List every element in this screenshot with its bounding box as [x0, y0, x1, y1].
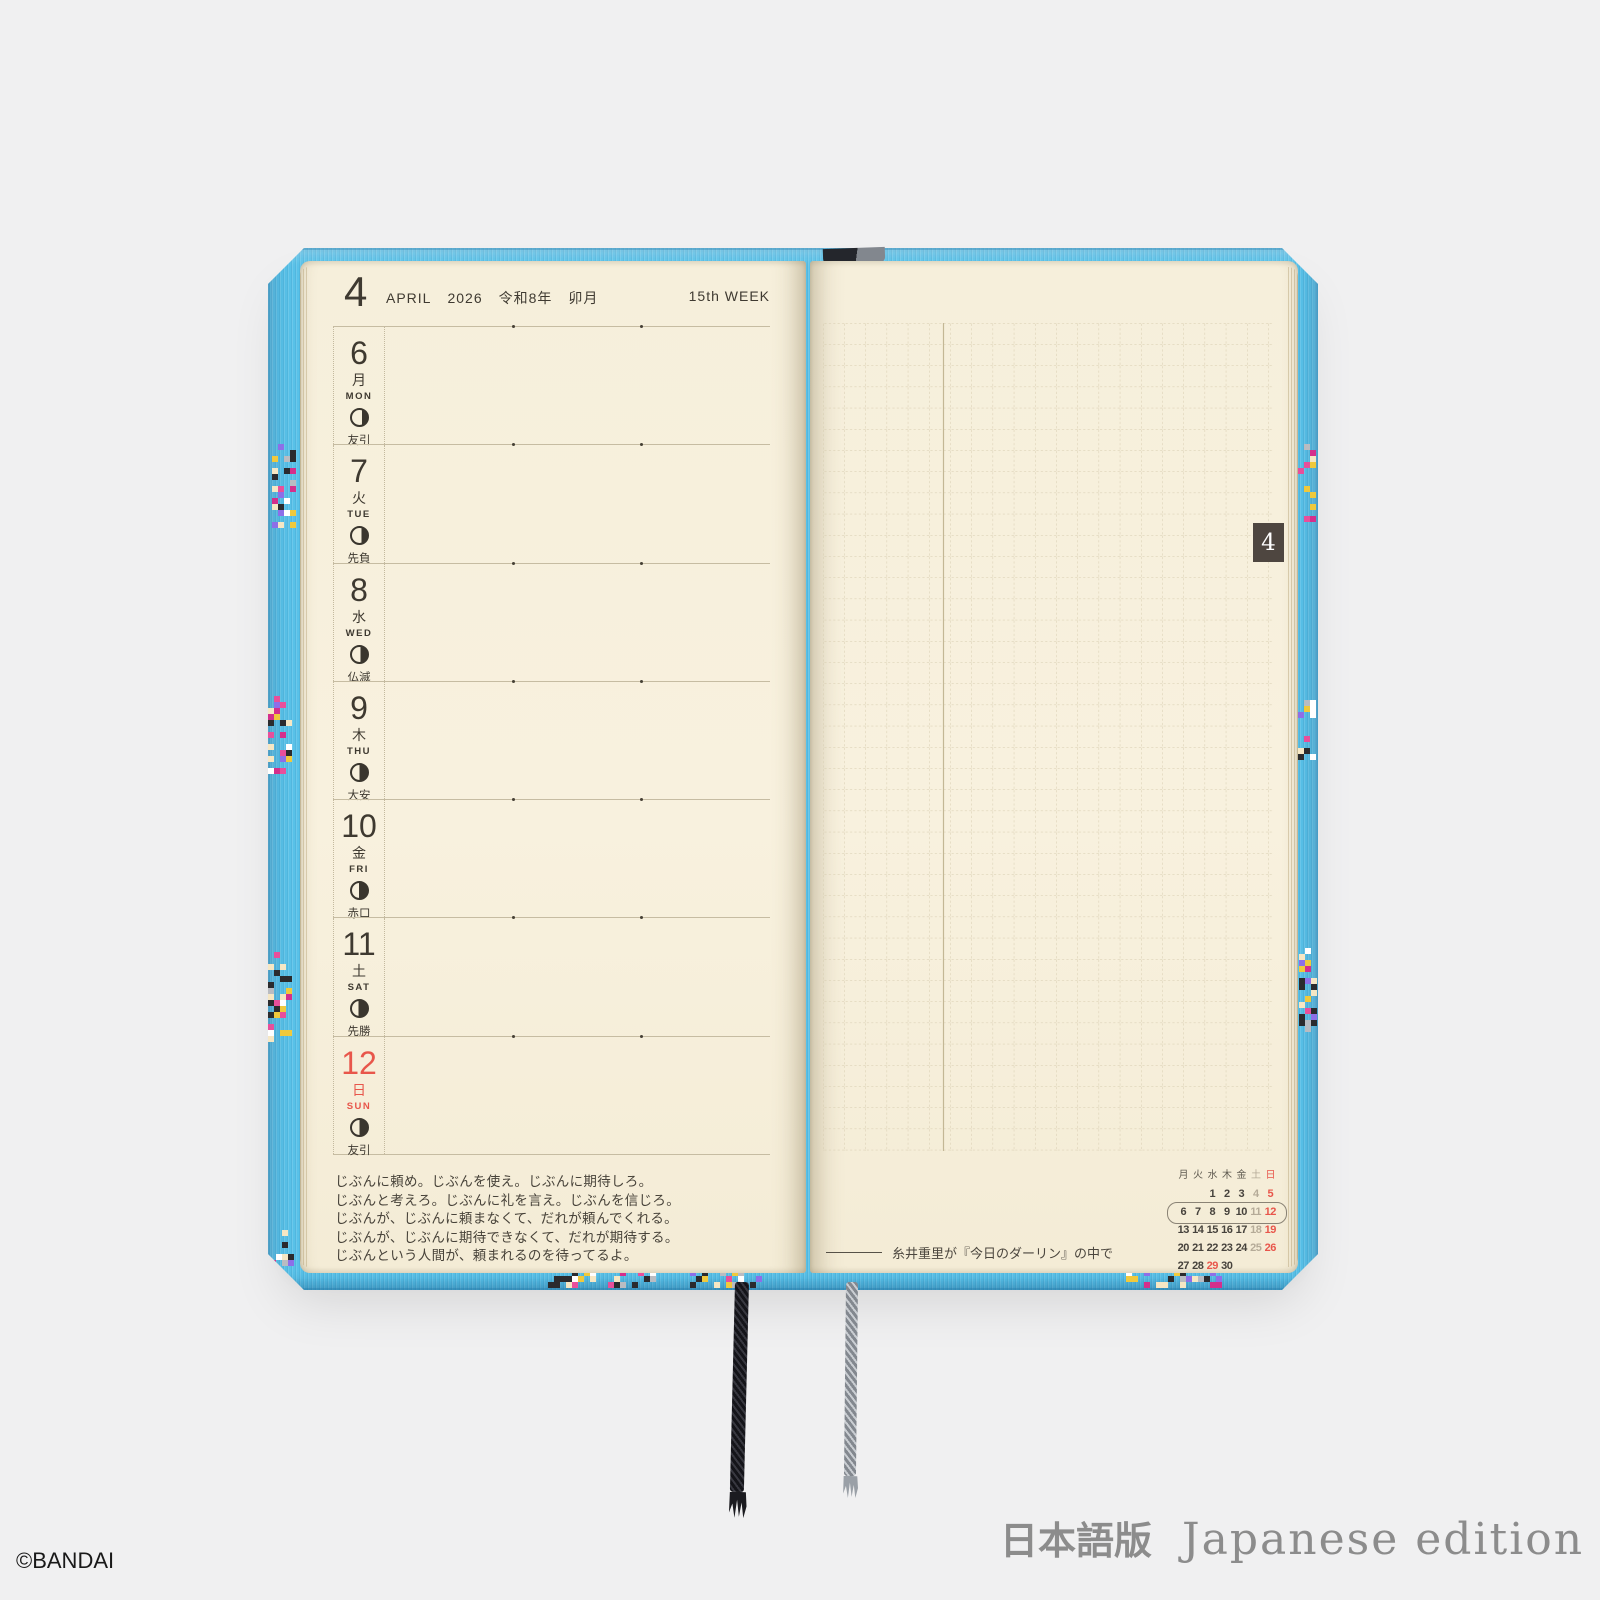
pixel-character-fragment	[268, 696, 274, 702]
day-date: 8	[334, 573, 384, 607]
month-number: 4	[344, 271, 367, 313]
day-weekday-kanji: 木	[334, 727, 384, 743]
quote-line: じぶんと考えろ。じぶんに礼を言え。じぶんを信じろ。	[335, 1192, 680, 1211]
day-weekday-en: TUE	[334, 509, 384, 520]
quote-line: じぶんが、じぶんに期待できなくて、だれが期待する。	[335, 1229, 680, 1248]
edition-japanese: 日本語版	[1000, 1510, 1152, 1565]
edition-english: Japanese edition	[1182, 1514, 1584, 1565]
calendar-cell: 20	[1176, 1239, 1191, 1257]
moon-phase-icon	[350, 763, 369, 782]
calendar-cell	[1176, 1185, 1191, 1203]
day-row: 8 水 WED 仏滅	[333, 563, 770, 681]
calendar-cell: 23	[1220, 1239, 1235, 1257]
day-rokuyo: 友引	[334, 1142, 384, 1158]
kyureki: 卯月	[568, 290, 598, 306]
time-dot	[512, 325, 515, 328]
calendar-cell: 27	[1176, 1257, 1191, 1275]
time-dot	[640, 325, 643, 328]
calendar-cell: 木	[1220, 1167, 1235, 1185]
graph-grid	[823, 323, 1273, 1151]
mini-calendar: 月火水木金土日123456789101112131415161718192021…	[1176, 1167, 1278, 1275]
day-row: 6 月 MON 友引	[333, 326, 770, 444]
calendar-cell: 月	[1176, 1167, 1191, 1185]
day-info-column: 9 木 THU 大安	[333, 682, 385, 799]
day-date: 6	[334, 336, 384, 370]
day-weekday-en: SAT	[334, 982, 384, 993]
time-dot	[640, 680, 643, 683]
month-header: APRIL2026令和8年卯月	[386, 288, 614, 308]
time-dot	[640, 1035, 643, 1038]
calendar-cell: 29	[1205, 1257, 1220, 1275]
calendar-cell: 25	[1249, 1239, 1264, 1257]
calendar-cell: 土	[1249, 1167, 1264, 1185]
day-weekday-en: FRI	[334, 864, 384, 875]
calendar-cell: 21	[1191, 1239, 1206, 1257]
time-dot	[512, 1035, 515, 1038]
bookmark-ribbon-gray	[844, 1282, 858, 1476]
calendar-cell: 28	[1191, 1257, 1206, 1275]
calendar-cell: 金	[1234, 1167, 1249, 1185]
day-weekday-kanji: 月	[334, 372, 384, 388]
day-row: 7 火 TUE 先負	[333, 444, 770, 562]
time-dot	[512, 680, 515, 683]
product-photo: 4 APRIL2026令和8年卯月 15th WEEK 6 月 MON 友引 7…	[0, 0, 1600, 1600]
day-info-column: 10 金 FRI 赤口	[333, 800, 385, 917]
pixel-character-fragment	[268, 952, 274, 958]
calendar-cell: 日	[1263, 1167, 1278, 1185]
moon-phase-icon	[350, 881, 369, 900]
day-weekday-en: SUN	[334, 1101, 384, 1112]
day-weekday-kanji: 水	[334, 609, 384, 625]
calendar-cell: 22	[1205, 1239, 1220, 1257]
calendar-cell	[1263, 1257, 1278, 1275]
calendar-cell: 24	[1234, 1239, 1249, 1257]
wareki: 令和8年	[499, 290, 553, 306]
week-label: 15th WEEK	[689, 288, 770, 304]
moon-phase-icon	[350, 645, 369, 664]
quote-block: じぶんに頼め。じぶんを使え。じぶんに期待しろ。じぶんと考えろ。じぶんに礼を言え。…	[335, 1173, 680, 1266]
day-weekday-kanji: 土	[334, 963, 384, 979]
calendar-cell: 水	[1205, 1167, 1220, 1185]
pixel-character-fragment	[270, 1230, 276, 1236]
edition-caption: 日本語版 Japanese edition	[1000, 1510, 1584, 1565]
pixel-character-fragment	[1298, 700, 1304, 706]
quote-line: じぶんが、じぶんに頼まなくて、だれが頼んでくれる。	[335, 1210, 680, 1229]
pixel-character-fragment	[272, 444, 278, 450]
moon-phase-icon	[350, 408, 369, 427]
day-date: 11	[334, 927, 384, 961]
month-en: APRIL	[386, 290, 431, 306]
day-weekday-kanji: 金	[334, 845, 384, 861]
day-weekday-kanji: 日	[334, 1082, 384, 1098]
calendar-cell: 26	[1263, 1239, 1278, 1257]
day-weekday-kanji: 火	[334, 490, 384, 506]
time-dot	[640, 798, 643, 801]
copyright-text: ©BANDAI	[16, 1548, 114, 1574]
time-dot	[512, 443, 515, 446]
calendar-cell: 火	[1191, 1167, 1206, 1185]
year: 2026	[447, 290, 482, 306]
day-info-column: 6 月 MON 友引	[333, 327, 385, 444]
day-row: 11 土 SAT 先勝	[333, 917, 770, 1035]
calendar-cell	[1249, 1257, 1264, 1275]
pixel-character-fragment	[1298, 444, 1304, 450]
day-info-column: 11 土 SAT 先勝	[333, 918, 385, 1035]
attribution-dash	[826, 1252, 882, 1253]
time-dot	[512, 562, 515, 565]
current-week-oval	[1167, 1202, 1287, 1224]
left-page-weekly: 4 APRIL2026令和8年卯月 15th WEEK 6 月 MON 友引 7…	[300, 261, 806, 1273]
calendar-cell: 1	[1205, 1185, 1220, 1203]
day-row: 12 日 SUN 友引	[333, 1036, 770, 1154]
day-date: 10	[334, 809, 384, 843]
attribution-text: 糸井重里が『今日のダーリン』の中で	[892, 1243, 1113, 1262]
calendar-cell: 2	[1220, 1185, 1235, 1203]
day-weekday-en: THU	[334, 746, 384, 757]
day-date: 9	[334, 691, 384, 725]
time-dot	[640, 443, 643, 446]
calendar-cell: 5	[1263, 1185, 1278, 1203]
right-page-grid: 4 糸井重里が『今日のダーリン』の中で 月火水木金土日1234567891011…	[810, 261, 1298, 1273]
day-date: 7	[334, 454, 384, 488]
day-row: 10 金 FRI 赤口	[333, 799, 770, 917]
planner-book: 4 APRIL2026令和8年卯月 15th WEEK 6 月 MON 友引 7…	[268, 248, 1318, 1290]
day-row: 9 木 THU 大安	[333, 681, 770, 799]
moon-phase-icon	[350, 999, 369, 1018]
quote-line: じぶんに頼め。じぶんを使え。じぶんに期待しろ。	[335, 1173, 680, 1192]
bookmark-ribbon-black	[730, 1282, 749, 1492]
time-dot	[512, 798, 515, 801]
calendar-cell: 30	[1220, 1257, 1235, 1275]
time-dot	[512, 916, 515, 919]
calendar-cell	[1191, 1185, 1206, 1203]
day-weekday-en: WED	[334, 628, 384, 639]
month-tab: 4	[1253, 523, 1284, 562]
calendar-cell: 4	[1249, 1185, 1264, 1203]
day-rows: 6 月 MON 友引 7 火 TUE 先負 8 水 WED 仏滅 9	[333, 326, 770, 1155]
pixel-character-fragment	[1299, 948, 1305, 954]
calendar-cell	[1234, 1257, 1249, 1275]
quote-attribution: 糸井重里が『今日のダーリン』の中で	[826, 1243, 1113, 1262]
day-info-column: 8 水 WED 仏滅	[333, 564, 385, 681]
day-date: 12	[334, 1046, 384, 1080]
moon-phase-icon	[350, 526, 369, 545]
time-dot	[640, 562, 643, 565]
quote-line: じぶんという人間が、頼まれるのを待ってるよ。	[335, 1247, 680, 1266]
calendar-cell: 3	[1234, 1185, 1249, 1203]
day-weekday-en: MON	[334, 391, 384, 402]
day-info-column: 7 火 TUE 先負	[333, 445, 385, 562]
time-dot	[640, 916, 643, 919]
moon-phase-icon	[350, 1118, 369, 1137]
day-info-column: 12 日 SUN 友引	[333, 1037, 385, 1154]
